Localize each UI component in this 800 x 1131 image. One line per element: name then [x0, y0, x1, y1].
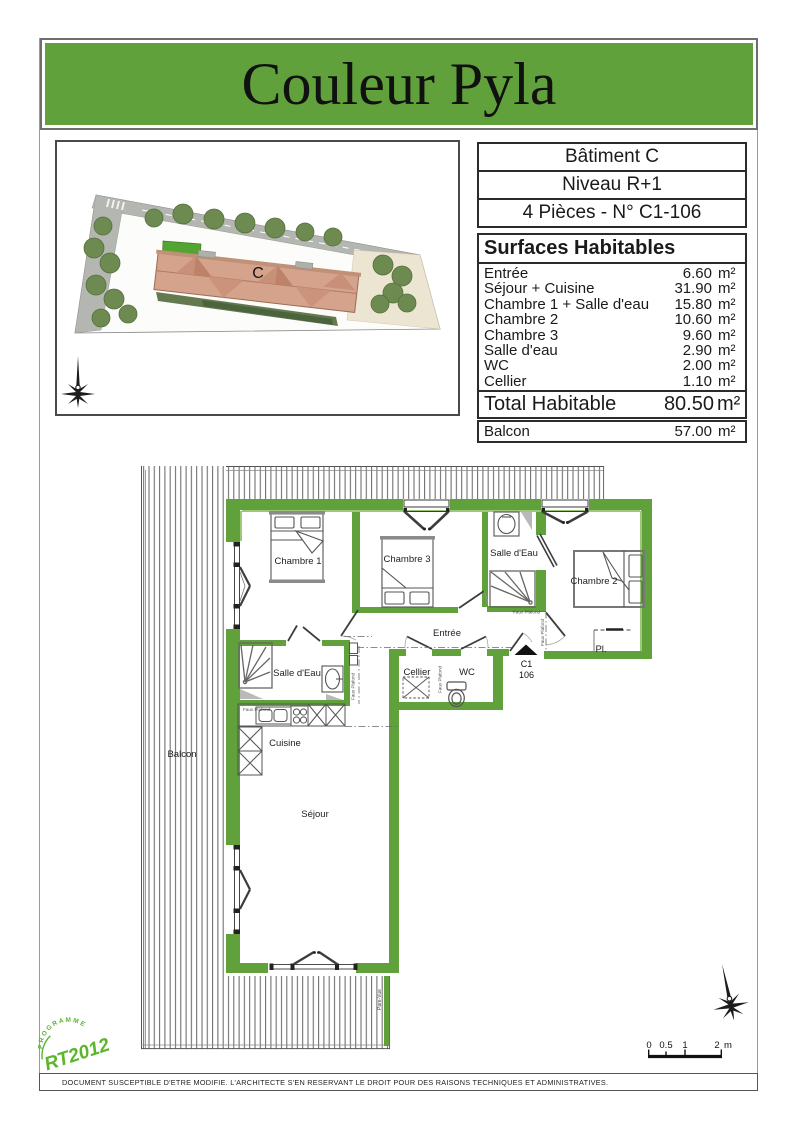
svg-text:RT2012: RT2012: [42, 1034, 113, 1075]
svg-text:Chambre 3: Chambre 3: [384, 554, 431, 565]
svg-text:Entrée: Entrée: [433, 628, 461, 639]
svg-text:0.5: 0.5: [659, 1040, 672, 1051]
svg-text:Faux Plafond: Faux Plafond: [438, 665, 443, 693]
svg-text:C1: C1: [521, 659, 533, 669]
svg-text:0: 0: [646, 1040, 651, 1051]
svg-text:m: m: [724, 1040, 732, 1051]
svg-text:Séjour: Séjour: [301, 809, 328, 820]
svg-text:Pl.: Pl.: [595, 644, 606, 655]
svg-text:Salle d'Eau: Salle d'Eau: [273, 668, 321, 679]
svg-text:Balcon: Balcon: [167, 749, 196, 760]
svg-text:Chambre 1: Chambre 1: [275, 556, 322, 567]
svg-text:2: 2: [714, 1040, 719, 1051]
svg-text:Chambre 2: Chambre 2: [571, 576, 618, 587]
svg-text:Cuisine: Cuisine: [269, 738, 301, 749]
svg-text:Faux Plafond: Faux Plafond: [243, 707, 271, 712]
svg-text:WC: WC: [459, 667, 475, 678]
svg-text:Faux Plafond: Faux Plafond: [513, 610, 541, 615]
svg-text:Pare-Vue: Pare-Vue: [377, 989, 383, 1010]
svg-text:Faux Plafond: Faux Plafond: [351, 672, 356, 700]
svg-text:Faux Plafond: Faux Plafond: [540, 618, 545, 646]
svg-text:Salle d'Eau: Salle d'Eau: [490, 548, 538, 559]
svg-text:106: 106: [519, 670, 534, 680]
svg-text:Cellier: Cellier: [404, 667, 431, 678]
svg-text:1: 1: [682, 1040, 687, 1051]
